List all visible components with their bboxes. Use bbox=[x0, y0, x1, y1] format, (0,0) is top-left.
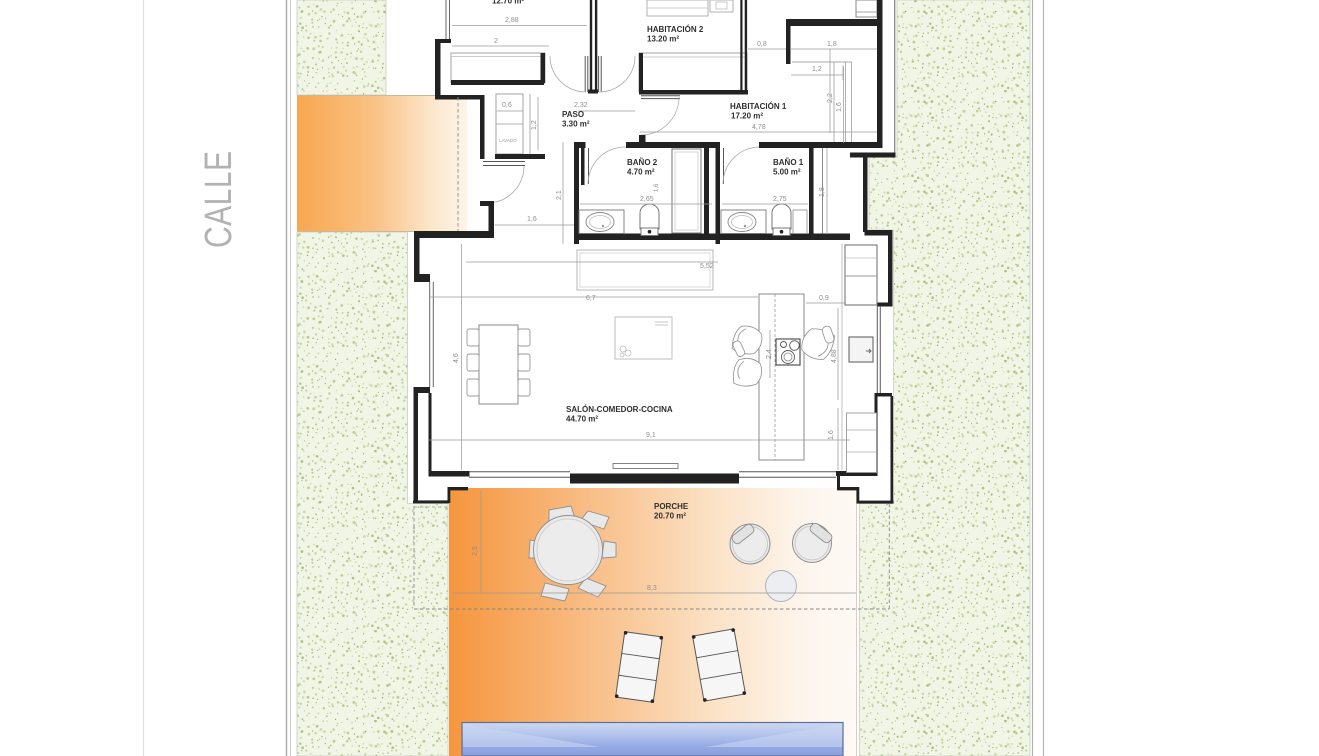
svg-text:4,88: 4,88 bbox=[831, 349, 838, 363]
svg-text:2,4: 2,4 bbox=[766, 349, 773, 359]
svg-text:0,6: 0,6 bbox=[502, 102, 512, 109]
svg-text:2,75: 2,75 bbox=[773, 196, 787, 203]
svg-text:1,6: 1,6 bbox=[654, 183, 660, 192]
svg-text:PORCHE: PORCHE bbox=[654, 502, 689, 511]
svg-text:4,78: 4,78 bbox=[752, 124, 766, 131]
svg-text:BAÑO 1: BAÑO 1 bbox=[773, 158, 804, 167]
svg-text:BAÑO 2: BAÑO 2 bbox=[627, 158, 658, 167]
svg-text:2,1: 2,1 bbox=[556, 190, 563, 200]
svg-text:HABITACIÓN 2: HABITACIÓN 2 bbox=[647, 25, 704, 34]
svg-text:2,5: 2,5 bbox=[472, 546, 479, 556]
svg-text:4.70 m²: 4.70 m² bbox=[627, 168, 655, 177]
svg-text:1,2: 1,2 bbox=[531, 120, 538, 130]
svg-text:2,32: 2,32 bbox=[574, 102, 588, 109]
svg-text:8,3: 8,3 bbox=[647, 585, 657, 592]
svg-text:9,1: 9,1 bbox=[646, 432, 656, 439]
svg-text:HABITACIÓN 1: HABITACIÓN 1 bbox=[730, 102, 787, 111]
svg-text:1,8: 1,8 bbox=[827, 41, 837, 48]
svg-text:20.70 m²: 20.70 m² bbox=[654, 512, 686, 521]
svg-text:PASO: PASO bbox=[562, 110, 584, 119]
svg-text:CALLE: CALLE bbox=[198, 150, 240, 248]
svg-text:SALÓN-COMEDOR-COCINA: SALÓN-COMEDOR-COCINA bbox=[566, 405, 673, 414]
svg-text:2,2: 2,2 bbox=[827, 93, 834, 103]
svg-text:6,7: 6,7 bbox=[586, 295, 596, 302]
svg-text:13.20 m²: 13.20 m² bbox=[647, 35, 679, 44]
svg-text:4,6: 4,6 bbox=[453, 353, 460, 363]
svg-text:1,6: 1,6 bbox=[836, 102, 843, 112]
svg-text:0,8: 0,8 bbox=[757, 41, 767, 48]
svg-text:1,8: 1,8 bbox=[819, 187, 826, 197]
svg-text:1,2: 1,2 bbox=[812, 66, 822, 73]
svg-text:LAVADO: LAVADO bbox=[499, 138, 517, 143]
svg-text:2: 2 bbox=[494, 38, 498, 45]
svg-text:1,6: 1,6 bbox=[828, 430, 835, 440]
svg-text:44.70 m²: 44.70 m² bbox=[566, 415, 598, 424]
svg-text:0,9: 0,9 bbox=[819, 295, 829, 302]
svg-text:5.00 m²: 5.00 m² bbox=[773, 168, 801, 177]
svg-text:2,88: 2,88 bbox=[505, 17, 519, 24]
svg-text:1,6: 1,6 bbox=[527, 216, 537, 223]
svg-text:3.30 m²: 3.30 m² bbox=[562, 120, 590, 129]
svg-text:2,65: 2,65 bbox=[640, 196, 654, 203]
svg-text:12.70 m²: 12.70 m² bbox=[492, 0, 524, 6]
svg-text:17.20 m²: 17.20 m² bbox=[731, 112, 763, 121]
svg-text:5,52: 5,52 bbox=[700, 263, 714, 270]
